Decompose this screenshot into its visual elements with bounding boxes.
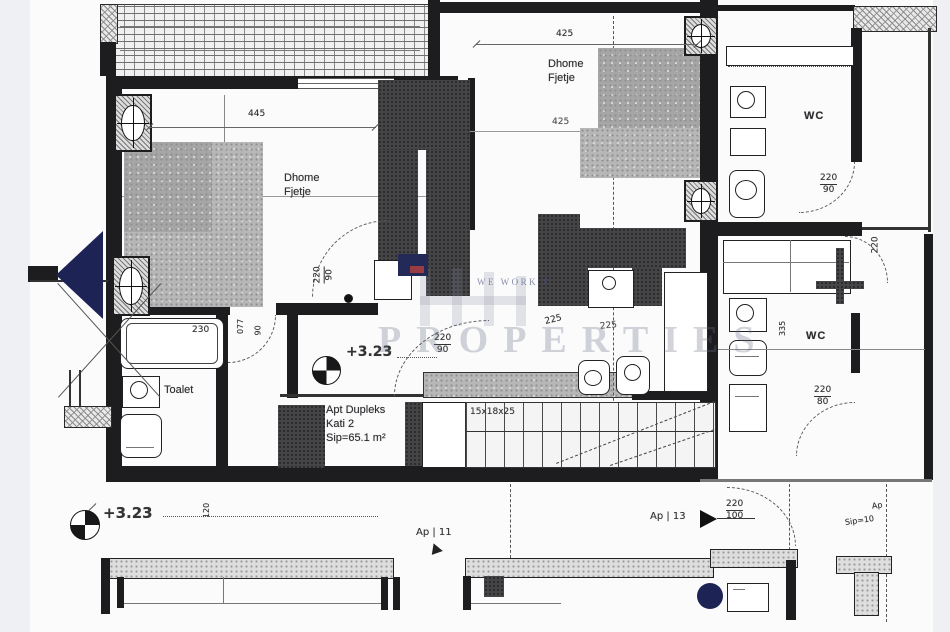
dim-wc-right-width: 335 bbox=[779, 321, 788, 336]
wall-hall-vertical bbox=[287, 315, 298, 398]
right-margin bbox=[933, 0, 950, 632]
dim-line bbox=[150, 127, 376, 128]
washbasin-bowl bbox=[737, 91, 755, 109]
navy-triangle-marker bbox=[56, 231, 103, 319]
lower-wall-pier bbox=[381, 577, 388, 610]
door-arc-bedroom1 bbox=[312, 220, 389, 297]
wall-right-unit-mid-thin bbox=[862, 227, 930, 230]
lower-wall-pier bbox=[484, 576, 504, 597]
lower-wall-inner-line bbox=[124, 603, 381, 604]
door-arc-right-room bbox=[845, 236, 888, 283]
vanity-dashes bbox=[728, 66, 850, 67]
sink-faucet bbox=[602, 276, 616, 290]
shaft-block bbox=[278, 405, 325, 468]
vanity-counter bbox=[726, 46, 854, 66]
lower-wall-inner-line bbox=[471, 603, 561, 604]
lower-wall-l-leg bbox=[854, 572, 879, 616]
kitchen-counter-mid bbox=[632, 268, 662, 306]
level-marker-tail bbox=[89, 503, 97, 511]
wall-top-right bbox=[718, 5, 855, 11]
bed-bedroom1-pillow bbox=[124, 142, 212, 232]
balcony-dim-line bbox=[120, 26, 420, 27]
wall-far-right-thin bbox=[928, 28, 931, 232]
room-label-wc-top: WC bbox=[804, 110, 824, 124]
annex-wall-thin bbox=[69, 370, 81, 408]
wall-top-bedroom2 bbox=[440, 2, 718, 13]
left-margin bbox=[0, 0, 30, 632]
kitchen-counter-left bbox=[538, 268, 588, 306]
annex-wall-hatch bbox=[64, 406, 112, 428]
balcony-dim-line bbox=[120, 50, 420, 51]
watermark-logo-red-fragment bbox=[410, 266, 424, 273]
unit-label-ap-right: Ap bbox=[871, 501, 883, 511]
wall-hall-top bbox=[276, 303, 378, 315]
wardrobe-right bbox=[426, 150, 470, 296]
watermark-logo-ghost bbox=[420, 296, 526, 305]
column-symbol bbox=[684, 16, 718, 56]
lower-wall-a-end bbox=[101, 558, 110, 614]
watermark-tagline: WE WORK F bbox=[477, 277, 550, 287]
couch-divider bbox=[790, 240, 791, 292]
shower-wc-right bbox=[729, 384, 767, 432]
room-label-bedroom1: Dhome Fjetje bbox=[284, 172, 319, 200]
washing-machine-line bbox=[126, 447, 154, 448]
apartment-area: Sip=65.1 m² bbox=[326, 432, 386, 446]
entry-arrow-ap11 bbox=[427, 543, 443, 558]
bed-bedroom2-bottom bbox=[580, 128, 700, 178]
dim-bedroom2-width: 425 bbox=[556, 30, 573, 40]
door-arc-wc-right bbox=[796, 402, 855, 456]
column-symbol bbox=[684, 180, 718, 222]
door-arc-toalet bbox=[228, 315, 276, 363]
floor-plan-canvas: 22090 Dhome Fjetje 445 Dhome Fjetje 425 … bbox=[0, 0, 950, 632]
bed-bedroom2-top bbox=[598, 48, 700, 128]
wall-wc-right-stub bbox=[851, 313, 860, 373]
dim-door-toalet-num: 077 bbox=[237, 319, 246, 334]
stair-spec: 15x18x25 bbox=[470, 408, 515, 418]
level-marker-symbol bbox=[70, 510, 100, 540]
lower-wall-a bbox=[103, 558, 394, 579]
level-marker-symbol bbox=[312, 356, 341, 385]
elevation-lower: +3.23 bbox=[103, 505, 153, 522]
column-symbol bbox=[114, 94, 152, 152]
column-symbol bbox=[112, 256, 150, 316]
wall-right-unit-mid bbox=[700, 222, 862, 236]
door-hinge-dot bbox=[344, 294, 353, 303]
dim-bedroom2-inner: 425 bbox=[552, 118, 569, 128]
dim-door-wc-right: 22080 bbox=[814, 386, 831, 408]
stair-flight-divider bbox=[465, 431, 714, 432]
dim-door-wc-top: 22090 bbox=[820, 174, 837, 196]
stair-wall-bar bbox=[405, 402, 422, 466]
unit-area-right: Sip=10 bbox=[845, 515, 875, 528]
lower-wall-c-end bbox=[786, 560, 796, 620]
dim-right-room: 220 bbox=[872, 236, 882, 253]
balcony-wall-stub bbox=[100, 42, 116, 76]
lower-wall-pier bbox=[463, 576, 471, 610]
couch-line bbox=[723, 262, 849, 263]
kitchen-counter-top bbox=[538, 228, 686, 268]
wall-right-unit-right bbox=[924, 234, 933, 480]
boundary-dashed bbox=[886, 484, 887, 622]
leader-dotted bbox=[163, 516, 378, 517]
lower-wall-inner-line bbox=[223, 577, 224, 604]
dim-door-bedroom1: 22090 bbox=[314, 266, 336, 283]
dim-bathtub: 230 bbox=[192, 326, 209, 336]
apartment-type: Apt Dupleks bbox=[326, 404, 386, 418]
dim-line bbox=[476, 44, 698, 45]
washing-machine bbox=[120, 414, 162, 458]
apartment-info: Apt Dupleks Kati 2 Sip=65.1 m² bbox=[326, 404, 386, 445]
unit-label-ap11: Ap | 11 bbox=[416, 527, 452, 538]
wall-bottom-main bbox=[106, 466, 718, 482]
stair-landing bbox=[422, 402, 467, 468]
lower-wall-c bbox=[710, 549, 798, 568]
washbasin-bowl bbox=[130, 381, 148, 399]
watermark-brand: PROPERTIES bbox=[378, 318, 770, 362]
room-label-wc-right: WC bbox=[806, 330, 826, 344]
heater-circle bbox=[624, 364, 641, 381]
lower-wall-pier bbox=[117, 577, 124, 608]
rack-horizontal bbox=[816, 281, 864, 289]
dim-landing: 120 bbox=[203, 503, 212, 518]
shower-line bbox=[735, 396, 759, 397]
rack-vertical bbox=[836, 248, 844, 304]
door-arc-entry bbox=[727, 487, 796, 546]
balcony-wall-stub bbox=[100, 4, 118, 44]
wall-hatch-top-right bbox=[853, 6, 937, 32]
bidet-wc-top bbox=[730, 128, 766, 156]
lower-wall-pier bbox=[393, 577, 400, 610]
wall-balcony-divider bbox=[428, 0, 440, 80]
wall-right-unit-bottom-thin bbox=[700, 479, 932, 482]
dim-bedroom1-width: 445 bbox=[248, 110, 265, 120]
lower-wall-b bbox=[465, 558, 714, 578]
lower-box bbox=[727, 583, 769, 612]
unit-label-ap13: Ap | 13 bbox=[650, 511, 686, 522]
toilet-bowl bbox=[735, 180, 757, 200]
balcony-hatch bbox=[113, 4, 430, 78]
toilet-bowl bbox=[584, 370, 602, 386]
navy-dot-marker bbox=[697, 583, 723, 609]
dim-door-toalet-den: 90 bbox=[255, 325, 264, 335]
entry-arrow-ap13 bbox=[700, 510, 717, 528]
boundary-dashed bbox=[510, 484, 511, 558]
apartment-floor: Kati 2 bbox=[326, 418, 386, 432]
room-label-toalet: Toalet bbox=[164, 384, 193, 398]
wardrobe-top bbox=[378, 80, 470, 150]
lower-box-tick bbox=[733, 589, 745, 590]
room-label-bedroom2: Dhome Fjetje bbox=[548, 58, 583, 86]
